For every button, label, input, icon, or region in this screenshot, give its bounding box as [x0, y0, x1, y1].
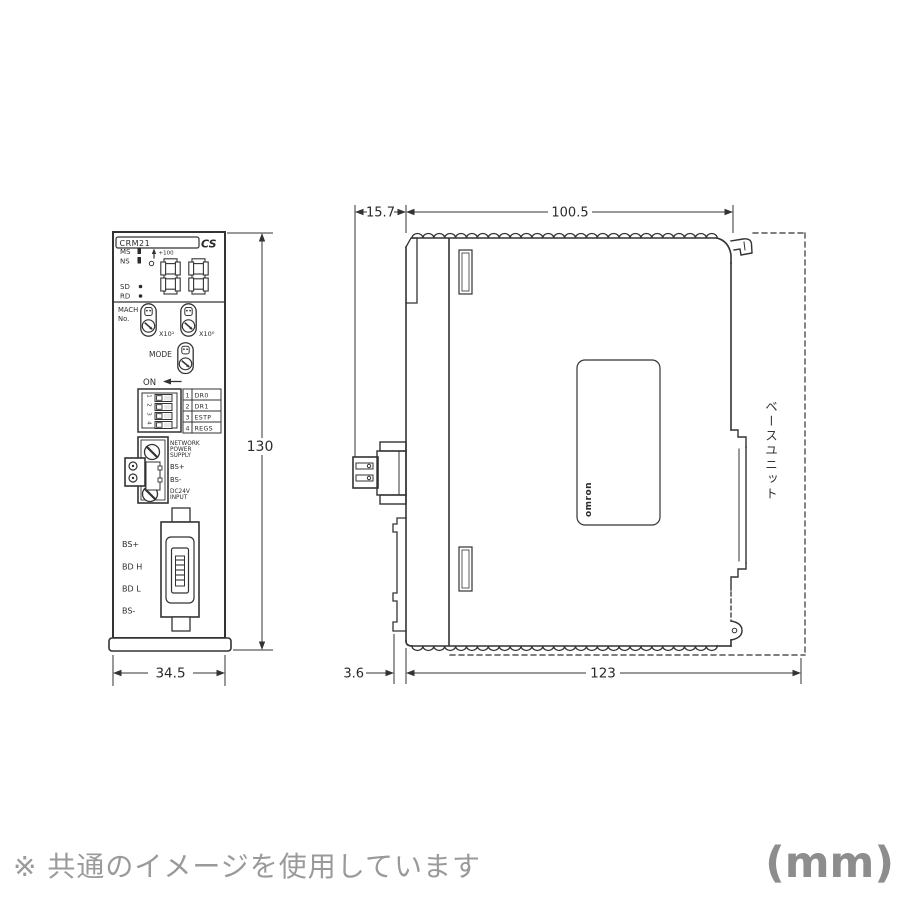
dip-function-table: 1 DR0 2 DR1 3 ESTP 4 REGS: [183, 389, 221, 433]
led-rd-label: RD: [120, 293, 130, 301]
dimension-drawing-page: CRM21 CS MS NS +100 SD RD MACH No. X10¹ …: [0, 0, 900, 900]
x10-0-label: X10⁰: [199, 330, 215, 338]
table-row-1-no: 1: [185, 392, 189, 399]
vent-slot-top: [459, 250, 472, 294]
mode-label: MODE: [149, 350, 172, 359]
mach-rotary-x10-1: [141, 304, 156, 336]
led-ms-label: MS: [120, 248, 131, 256]
footer-note: ※ 共通のイメージを使用しています: [13, 845, 481, 885]
dim-depth-total-value: 123: [590, 666, 616, 682]
model-label: CRM21: [120, 239, 151, 248]
mach-rotary-x10-0: [181, 304, 196, 336]
led-sd-icon: [139, 285, 143, 289]
dim-width-value: 34.5: [155, 666, 185, 682]
dip-switch-block: 1 2 3 4: [138, 389, 181, 432]
power-input-label: INPUT: [170, 495, 188, 501]
din-hook-top: [731, 239, 752, 255]
side-power-connector: [353, 442, 406, 504]
terminal-bs-minus-label: BS-: [122, 607, 135, 616]
comm-connector: [161, 508, 199, 631]
dip-pos-1: 1: [146, 394, 152, 398]
led-ms-icon: [138, 248, 142, 255]
led-rd-icon: [139, 294, 143, 298]
table-row-2-label: DR1: [195, 403, 209, 410]
mounting-bracket: [393, 518, 406, 631]
dip-pos-4: 4: [146, 421, 152, 425]
table-row-4-label: REGS: [195, 425, 213, 432]
series-logo: CS: [201, 238, 217, 251]
front-view: CRM21 CS MS NS +100 SD RD MACH No. X10¹ …: [109, 232, 231, 651]
terminal-bd-h-label: BD H: [122, 563, 142, 572]
led-sd-label: SD: [120, 283, 130, 291]
power-label-3: SUPPLY: [170, 453, 191, 459]
unit-label: (mm): [765, 838, 894, 888]
mach-label: MACH: [118, 306, 138, 314]
table-row-3-no: 3: [185, 414, 189, 421]
table-row-3-label: ESTP: [195, 414, 212, 421]
table-row-1-label: DR0: [195, 392, 209, 399]
vent-slot-bottom: [459, 547, 472, 591]
mode-rotary: [178, 343, 193, 374]
led-ns-icon: [138, 257, 142, 264]
base-unit-label: ベースユニット: [761, 400, 780, 502]
led-ns-label: NS: [120, 258, 130, 266]
mach-no-label: No.: [118, 315, 129, 323]
dim-rail-gap-value: 3.6: [343, 667, 364, 682]
brand-logo: omron: [584, 482, 594, 517]
dim-depth-body-value: 100.5: [551, 206, 588, 221]
dip-pos-2: 2: [146, 403, 152, 407]
terminal-bd-l-label: BD L: [122, 585, 141, 594]
dim-front-offset-value: 15.7: [366, 206, 395, 221]
base-unit-boundary: [450, 233, 805, 655]
x10-1-label: X10¹: [159, 330, 175, 338]
dip-pos-3: 3: [146, 412, 152, 416]
table-row-2-no: 2: [185, 403, 189, 410]
side-dimensions: 15.7 100.5 3.6 123: [343, 205, 801, 684]
svg-text:+100: +100: [159, 251, 175, 257]
dim-height-value: 130: [247, 439, 274, 455]
terminal-bs-plus-label: BS+: [122, 540, 139, 549]
front-base-lip: [109, 638, 231, 651]
side-view: omron: [353, 233, 805, 655]
on-label: ON: [143, 378, 156, 388]
power-bs-minus-label: BS-: [170, 476, 182, 484]
power-bs-plus-label: BS+: [170, 463, 185, 471]
table-row-4-no: 4: [185, 425, 189, 432]
